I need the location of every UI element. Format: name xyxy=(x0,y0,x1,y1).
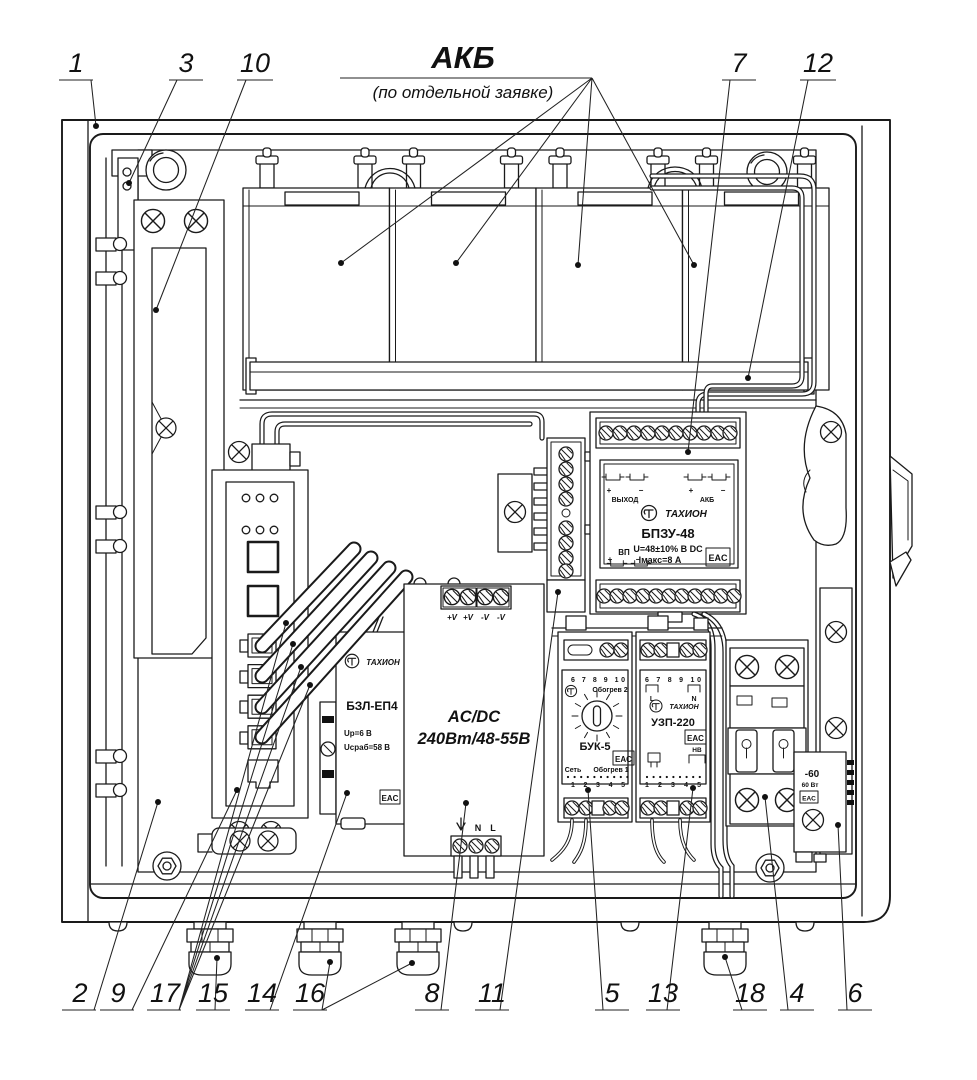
eac-label: EAC xyxy=(802,796,816,803)
n-label: N xyxy=(691,696,696,703)
eac-label: EAC xyxy=(382,794,399,803)
nv-label: НВ xyxy=(692,747,702,754)
callout-number: 18 xyxy=(735,978,765,1008)
n-label: N xyxy=(475,823,482,833)
dome-bolt xyxy=(621,922,639,931)
terminal-label: +V xyxy=(463,613,474,622)
phillips-screw xyxy=(505,502,526,523)
dome-bolt xyxy=(109,922,127,931)
callout-number: 14 xyxy=(247,978,277,1008)
strip-bracket xyxy=(547,580,585,612)
l-label: L xyxy=(650,696,655,703)
eac-label: EAC xyxy=(708,553,728,563)
l-label: L xyxy=(490,823,496,833)
callout-number: 6 xyxy=(847,978,863,1008)
callout-number: 8 xyxy=(424,978,439,1008)
phillips-screw xyxy=(156,418,176,438)
module-name: AC/DC xyxy=(447,708,501,726)
callout-number: 16 xyxy=(295,978,326,1008)
akb-note: (по отдельной заявке) xyxy=(373,83,554,102)
callout-number: 3 xyxy=(178,48,193,78)
ground-bolt-left xyxy=(153,852,181,880)
callout-number: 10 xyxy=(240,48,270,78)
module-buk5: 6 7 8 9 10 Обогрев 2 БУК-5 EAC Сеть Обог… xyxy=(558,632,634,822)
module-name: БУК-5 xyxy=(580,741,611,753)
module-name: УЗП-220 xyxy=(651,717,695,729)
phillips-screw xyxy=(229,442,250,463)
u1-label: Uр=6 В xyxy=(344,729,372,738)
left-mounting-plate xyxy=(134,200,224,658)
phillips-screw xyxy=(826,718,847,739)
callout-number: 12 xyxy=(803,48,833,78)
net-label: Сеть xyxy=(565,767,582,774)
phillips-screw xyxy=(775,655,798,678)
module-acdc: +V +V -V -V AC/DC 240Вт/48-55В N L xyxy=(404,578,544,878)
u2-label: Uсраб=58 В xyxy=(344,743,390,752)
akb-label: АКБ xyxy=(700,497,714,504)
callout-number: 5 xyxy=(604,978,620,1008)
callout-number: 4 xyxy=(789,978,804,1008)
phillips-screw xyxy=(826,622,847,643)
callout-number: 1 xyxy=(68,48,83,78)
cable-gland-3 xyxy=(395,922,441,975)
diagram-canvas: ТАХИОН БЗЛ-ЕП4 Uр=6 В Uсраб=58 В EAC xyxy=(0,0,977,1080)
callout-number: 9 xyxy=(110,978,125,1008)
ground-bolt-right xyxy=(756,854,784,882)
terminal-strip-vertical xyxy=(547,438,591,612)
callout-number: 17 xyxy=(150,978,181,1008)
minus-mark: − xyxy=(636,555,641,564)
phillips-screw xyxy=(735,788,758,811)
heater-module: -60 60 Вт EAC xyxy=(794,752,854,862)
akb-title: АКБ xyxy=(430,40,494,75)
callout-number: 2 xyxy=(71,978,87,1008)
heat2-label: Обогрев 2 xyxy=(592,686,627,694)
current-label: Iмакс=8 А xyxy=(639,555,682,565)
junction-box xyxy=(252,444,290,472)
door-catch xyxy=(803,406,846,545)
callout-1: 1 xyxy=(59,48,99,129)
voltage-label: U=48±10% В DC xyxy=(633,544,703,554)
cable-gland-4 xyxy=(702,922,748,975)
top-left-boss xyxy=(146,150,186,190)
module-rating: 240Вт/48-55В xyxy=(417,730,531,748)
eac-label: EAC xyxy=(687,734,704,743)
brand-label: ТАХИОН xyxy=(665,509,708,520)
phillips-screw xyxy=(735,655,758,678)
callout-number: 11 xyxy=(478,978,506,1008)
terminal-label: -V xyxy=(497,613,506,622)
phillips-screw xyxy=(803,810,824,831)
callout-number: 7 xyxy=(731,48,747,78)
dome-bolt xyxy=(796,922,814,931)
vp-label: ВП xyxy=(618,548,630,557)
callout-number: 15 xyxy=(198,978,229,1008)
terminal-label: -V xyxy=(481,613,490,622)
plus-mark: + xyxy=(607,486,612,495)
cover-plate xyxy=(152,248,206,654)
module-name: БПЗУ-48 xyxy=(641,526,694,541)
brand-label: ТАХИОН xyxy=(669,704,699,711)
minus-mark: − xyxy=(639,486,644,495)
minus-mark: − xyxy=(721,486,726,495)
terminal-label: +V xyxy=(447,613,458,622)
eac-label: EAC xyxy=(615,755,632,764)
plus-mark: + xyxy=(689,486,694,495)
module-foot xyxy=(341,818,365,829)
callout-number: 13 xyxy=(648,978,678,1008)
equipment-cabinet-diagram: ТАХИОН БЗЛ-ЕП4 Uр=6 В Uсраб=58 В EAC xyxy=(0,0,977,1080)
heater-power: 60 Вт xyxy=(802,782,819,789)
module-uzp220: 6 7 8 9 10 L N ТАХИОН УЗП-220 EAC НВ 1 2… xyxy=(636,632,710,822)
cable-gland-2 xyxy=(297,922,343,975)
out-label: ВЫХОД xyxy=(612,497,639,504)
module-bpzu48: + − ВЫХОД + − АКБ ТАХИОН БПЗУ-48 U=48±10… xyxy=(590,412,746,622)
phillips-screw xyxy=(258,831,278,851)
heat1-label: Обогрев 1 xyxy=(593,766,628,774)
bottom-terminal-numbers: 1 2 3 4 5 xyxy=(571,782,625,789)
plus-mark: + xyxy=(608,555,613,564)
dome-bolt xyxy=(454,922,472,931)
phillips-screw xyxy=(821,422,842,443)
module-name: БЗЛ-ЕП4 xyxy=(346,699,398,713)
heater-label: -60 xyxy=(805,769,820,780)
phillips-screw xyxy=(141,209,164,232)
bottom-bracket xyxy=(212,828,296,854)
brand-label: ТАХИОН xyxy=(366,658,400,667)
